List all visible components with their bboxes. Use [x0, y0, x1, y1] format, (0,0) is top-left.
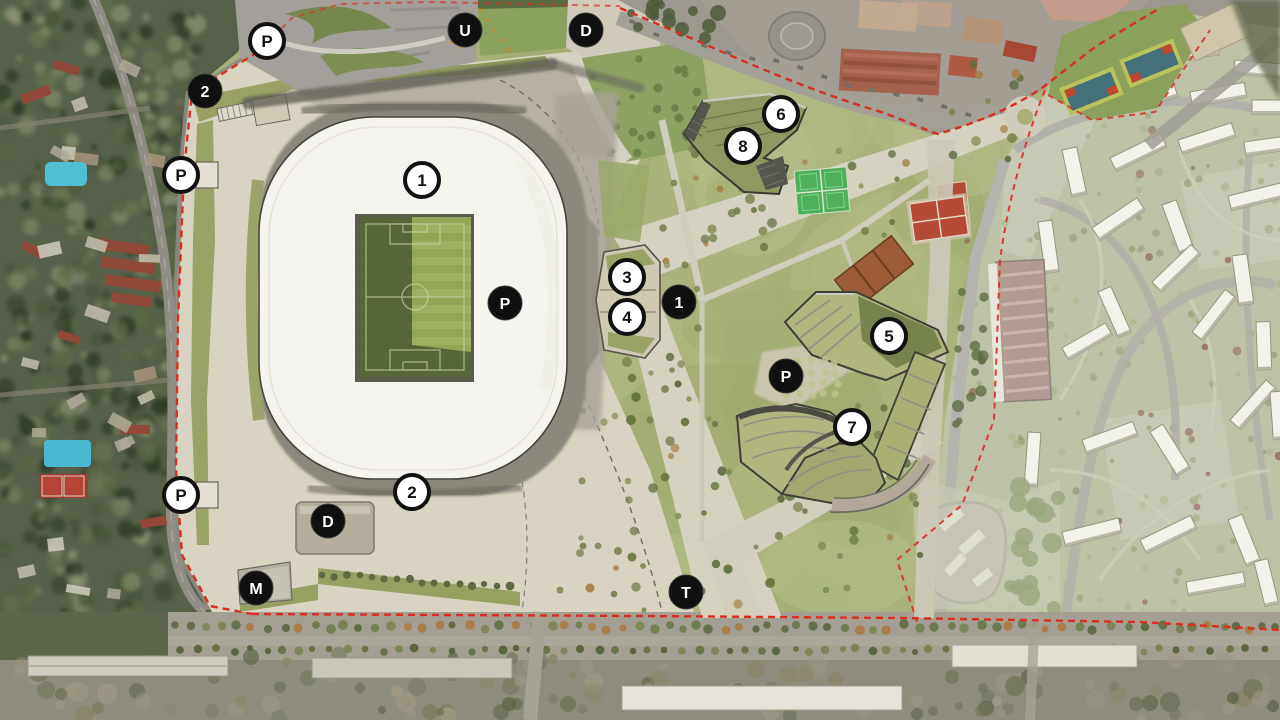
- svg-text:P: P: [500, 296, 511, 313]
- svg-text:5: 5: [884, 327, 893, 346]
- svg-text:D: D: [580, 23, 592, 40]
- svg-text:T: T: [681, 585, 691, 602]
- svg-text:6: 6: [776, 105, 785, 124]
- svg-text:2: 2: [201, 84, 210, 101]
- svg-text:1: 1: [675, 295, 684, 312]
- svg-text:P: P: [261, 32, 272, 51]
- svg-text:3: 3: [622, 268, 631, 287]
- svg-text:7: 7: [847, 418, 856, 437]
- svg-text:D: D: [322, 514, 334, 531]
- svg-text:8: 8: [738, 137, 747, 156]
- svg-text:4: 4: [622, 308, 632, 327]
- svg-text:P: P: [175, 486, 186, 505]
- svg-text:P: P: [175, 166, 186, 185]
- svg-text:2: 2: [407, 483, 416, 502]
- svg-text:P: P: [781, 369, 792, 386]
- svg-text:M: M: [249, 581, 262, 598]
- svg-text:1: 1: [417, 171, 426, 190]
- svg-text:U: U: [459, 23, 471, 40]
